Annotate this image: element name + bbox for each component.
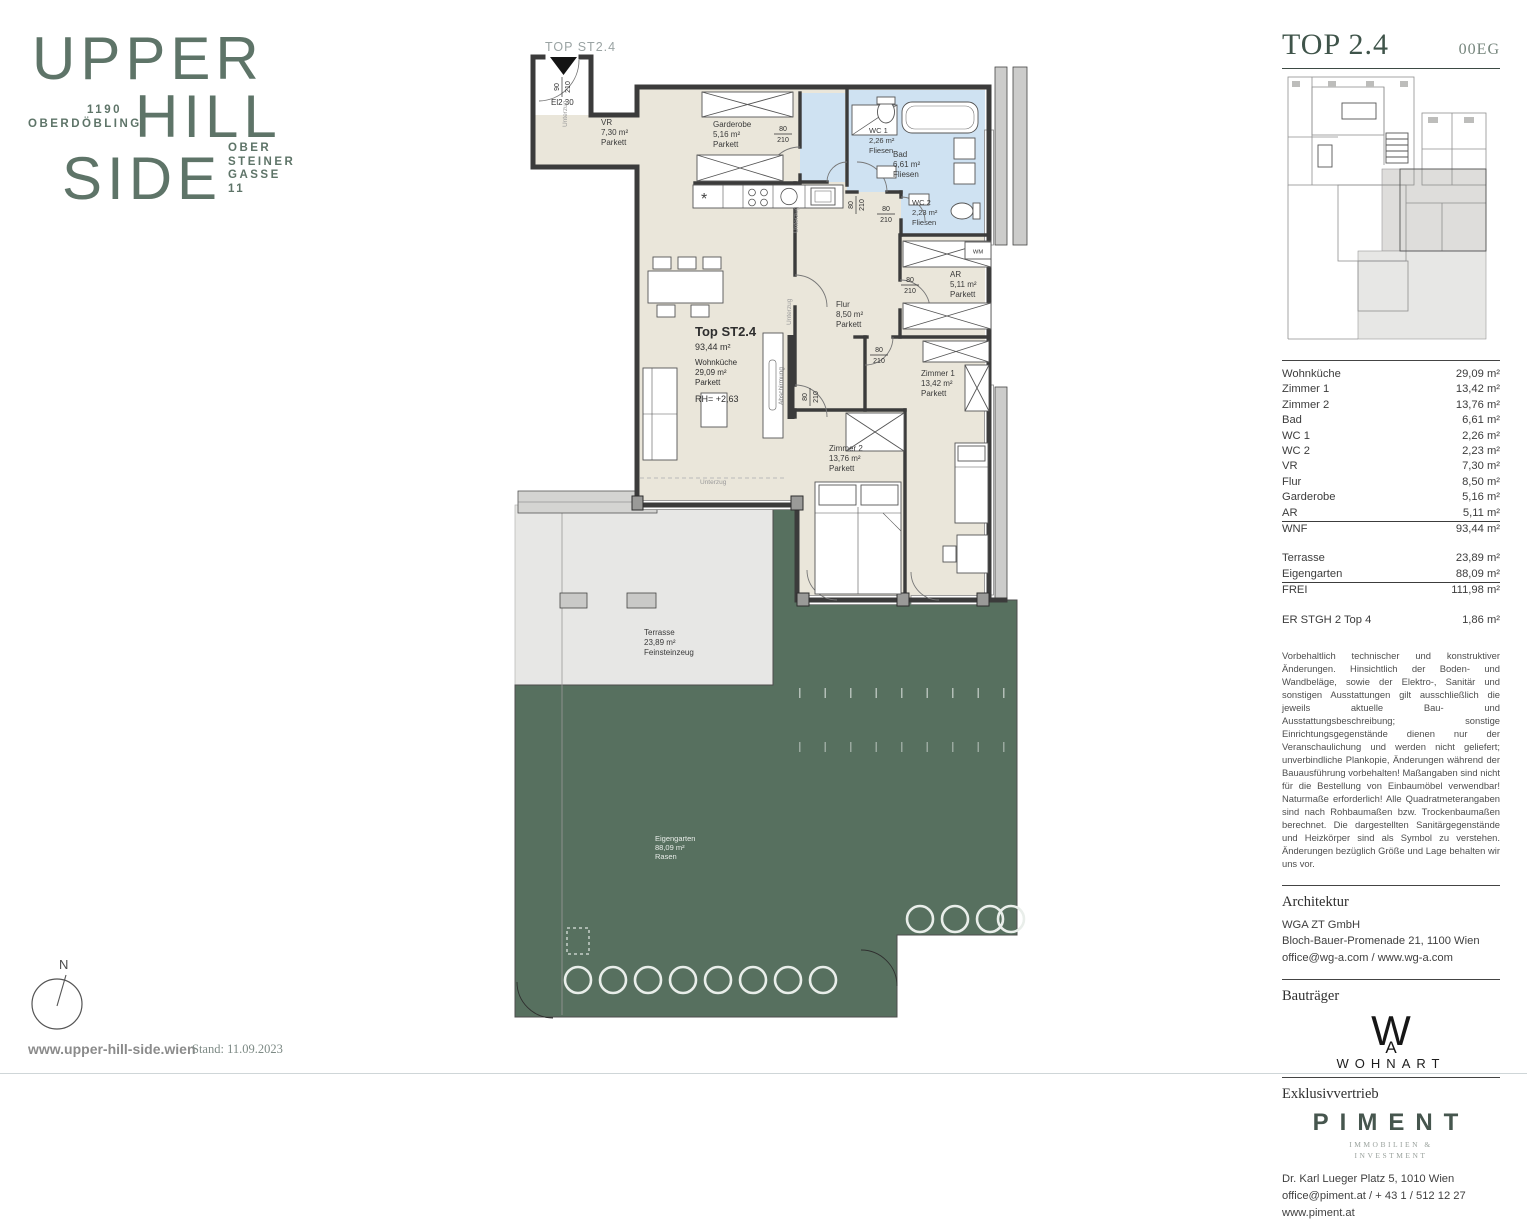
table-row: Bad6,61 m² — [1282, 413, 1500, 428]
piment-sub-1: IMMOBILIEN & — [1282, 1139, 1500, 1150]
svg-text:80: 80 — [802, 393, 809, 401]
compass-north-label: N — [59, 957, 68, 972]
architektur-line: WGA ZT GmbH — [1282, 917, 1500, 934]
vertrieb-heading: Exklusivvertrieb — [1282, 1086, 1500, 1103]
brand-district-zip: 1190 — [28, 104, 122, 118]
site-plan — [1282, 73, 1500, 355]
plan-top-label: TOP ST2.4 — [545, 40, 616, 54]
svg-text:Fliesen: Fliesen — [893, 170, 919, 179]
brand-street-3: GASSE — [228, 169, 295, 183]
svg-text:210: 210 — [873, 358, 885, 365]
table-row-frei: FREI111,98 m² — [1282, 582, 1500, 598]
svg-text:Terrasse: Terrasse — [644, 628, 675, 637]
floor-plan: * WM — [505, 35, 1035, 1035]
table-row-wnf: WNF93,44 m² — [1282, 521, 1500, 537]
svg-text:13,42 m²: 13,42 m² — [921, 379, 953, 388]
table-row: AR5,11 m² — [1282, 506, 1500, 521]
table-row: WC 22,23 m² — [1282, 444, 1500, 459]
svg-text:VR: VR — [601, 118, 612, 127]
svg-text:6,61 m²: 6,61 m² — [893, 160, 920, 169]
terrace-planter-1 — [560, 593, 587, 608]
brand-line-3: SIDE — [62, 150, 222, 208]
brand-street-1: OBER — [228, 142, 295, 156]
wohnart-monogram-icon: W A — [1346, 1011, 1436, 1055]
svg-text:WC 1: WC 1 — [869, 126, 888, 135]
svg-text:8,50 m²: 8,50 m² — [836, 310, 863, 319]
svg-text:210: 210 — [813, 391, 820, 403]
svg-text:2,23 m²: 2,23 m² — [912, 208, 938, 217]
table-row: Terrasse23,89 m² — [1282, 551, 1500, 566]
wohnart-logo: W A WOHNART — [1282, 1011, 1500, 1071]
svg-text:A: A — [1385, 1038, 1397, 1055]
rule-vertrieb — [1282, 1077, 1500, 1078]
disclaimer-text: Vorbehaltlich technischer und konstrukti… — [1282, 650, 1500, 870]
svg-text:5,11 m²: 5,11 m² — [950, 280, 977, 289]
svg-text:Zimmer 1: Zimmer 1 — [921, 369, 955, 378]
table-row: Garderobe5,16 m² — [1282, 490, 1500, 505]
freezer-icon: * — [701, 191, 707, 208]
table-top-rule — [1282, 360, 1500, 361]
svg-text:Bad: Bad — [893, 150, 907, 159]
svg-text:Flur: Flur — [836, 300, 850, 309]
bautraeger-heading: Bauträger — [1282, 988, 1500, 1005]
brand-street-4: 11 — [228, 183, 295, 197]
washing-machine-label: WM — [973, 250, 983, 256]
abschirmung-wall — [788, 335, 795, 419]
svg-text:Rasen: Rasen — [655, 852, 677, 861]
svg-text:RH= +2,63: RH= +2,63 — [695, 394, 739, 404]
svg-text:Unterzug: Unterzug — [793, 206, 800, 233]
svg-text:Fliesen: Fliesen — [869, 146, 893, 155]
floor-tag: 00EG — [1459, 41, 1500, 59]
piment-address: Dr. Karl Lueger Platz 5, 1010 Wien offic… — [1282, 1171, 1500, 1221]
piment-sub-2: INVESTMENT — [1282, 1150, 1500, 1161]
svg-text:13,76 m²: 13,76 m² — [829, 454, 861, 463]
svg-text:WC 2: WC 2 — [912, 198, 931, 207]
svg-text:Wohnküche: Wohnküche — [695, 358, 738, 367]
svg-text:93,44 m²: 93,44 m² — [695, 342, 731, 352]
svg-text:Parkett: Parkett — [695, 378, 721, 387]
brand-district: 1190 OBERDÖBLING — [28, 104, 122, 131]
page-edge-line — [0, 1073, 1527, 1074]
table-row: VR7,30 m² — [1282, 459, 1500, 474]
svg-text:29,09 m²: 29,09 m² — [695, 368, 727, 377]
svg-text:80: 80 — [779, 126, 787, 133]
svg-text:210: 210 — [565, 81, 572, 93]
table-row: Eigengarten88,09 m² — [1282, 567, 1500, 582]
architektur-line: Bloch-Bauer-Promenade 21, 1100 Wien — [1282, 933, 1500, 950]
wc1-floor — [800, 93, 845, 182]
table-row: Flur8,50 m² — [1282, 475, 1500, 490]
svg-text:90: 90 — [554, 83, 561, 91]
svg-text:80: 80 — [875, 347, 883, 354]
svg-text:80: 80 — [848, 201, 855, 209]
piment-logo: PIMENT IMMOBILIEN & INVESTMENT — [1282, 1109, 1500, 1162]
svg-text:Parkett: Parkett — [713, 140, 739, 149]
svg-text:Feinsteinzeug: Feinsteinzeug — [644, 648, 694, 657]
svg-text:Unterzug: Unterzug — [786, 298, 793, 325]
brand-street: OBER STEINER GASSE 11 — [228, 142, 295, 196]
piment-line: office@piment.at / + 43 1 / 512 12 27 — [1282, 1188, 1500, 1205]
piment-line: www.piment.at — [1282, 1205, 1500, 1222]
svg-text:AR: AR — [950, 270, 961, 279]
brand-logo: UPPER HILL SIDE 1190 OBERDÖBLING OBER ST… — [28, 30, 348, 245]
sidebar: TOP 2.4 00EG — [1282, 28, 1500, 1222]
svg-text:Unterzug: Unterzug — [700, 479, 727, 486]
svg-text:210: 210 — [904, 288, 916, 295]
svg-text:80: 80 — [882, 206, 890, 213]
abschirmung-label: Abschirmung — [778, 367, 785, 405]
svg-text:88,09 m²: 88,09 m² — [655, 843, 685, 852]
table-row: WC 12,26 m² — [1282, 429, 1500, 444]
rule-bautraeger — [1282, 979, 1500, 980]
architektur-line: office@wg-a.com / www.wg-a.com — [1282, 950, 1500, 967]
svg-text:210: 210 — [777, 137, 789, 144]
piment-subtitle: IMMOBILIEN & INVESTMENT — [1282, 1139, 1500, 1162]
table-row-extra: ER STGH 2 Top 41,86 m² — [1282, 613, 1500, 628]
table-row: Zimmer 213,76 m² — [1282, 398, 1500, 413]
piment-name: PIMENT — [1282, 1109, 1500, 1137]
svg-text:Parkett: Parkett — [950, 290, 976, 299]
brand-street-2: STEINER — [228, 156, 295, 170]
svg-text:2,26 m²: 2,26 m² — [869, 136, 895, 145]
svg-text:Eigengarten: Eigengarten — [655, 834, 695, 843]
svg-text:23,89 m²: 23,89 m² — [644, 638, 676, 647]
wohnart-name: WOHNART — [1282, 1056, 1500, 1071]
footer-website: www.upper-hill-side.wien — [28, 1041, 196, 1057]
svg-text:7,30 m²: 7,30 m² — [601, 128, 628, 137]
neighbour-walls — [995, 67, 1027, 598]
sidebar-title-row: TOP 2.4 00EG — [1282, 28, 1500, 62]
svg-text:Unterzug: Unterzug — [562, 100, 569, 127]
table-row: Wohnküche29,09 m² — [1282, 367, 1500, 382]
svg-text:Parkett: Parkett — [836, 320, 862, 329]
dim-entrance: 90 210 — [554, 77, 572, 97]
title-rule — [1282, 68, 1500, 69]
entrance-arrow-icon — [550, 57, 577, 75]
svg-text:210: 210 — [880, 217, 892, 224]
table-row: Zimmer 113,42 m² — [1282, 382, 1500, 397]
brand-line-1: UPPER — [32, 30, 264, 88]
page: { "brand": { "line1": "UPPER", "line2": … — [0, 0, 1527, 1080]
svg-text:Parkett: Parkett — [601, 138, 627, 147]
svg-text:Parkett: Parkett — [829, 464, 855, 473]
piment-line: Dr. Karl Lueger Platz 5, 1010 Wien — [1282, 1171, 1500, 1188]
architektur-heading: Architektur — [1282, 894, 1500, 911]
rule-architektur — [1282, 885, 1500, 886]
svg-text:Garderobe: Garderobe — [713, 120, 752, 129]
svg-text:Top ST2.4: Top ST2.4 — [695, 324, 757, 339]
svg-text:210: 210 — [859, 199, 866, 211]
footer-stand: Stand: 11.09.2023 — [192, 1042, 283, 1057]
unit-title: TOP 2.4 — [1282, 28, 1389, 62]
svg-text:5,16 m²: 5,16 m² — [713, 130, 740, 139]
bed-zimmer2 — [815, 482, 901, 594]
area-table: Wohnküche29,09 m² Zimmer 113,42 m² Zimme… — [1282, 367, 1500, 628]
svg-text:80: 80 — [906, 277, 914, 284]
bed-zimmer1 — [955, 443, 988, 523]
architektur-address: WGA ZT GmbH Bloch-Bauer-Promenade 21, 11… — [1282, 917, 1500, 967]
sink-icon — [811, 188, 835, 205]
terrace-planter-2 — [627, 593, 656, 608]
svg-text:Parkett: Parkett — [921, 389, 947, 398]
compass-icon: N — [25, 955, 103, 1037]
brand-district-name: OBERDÖBLING — [28, 118, 122, 132]
brand-line-2: HILL — [135, 88, 282, 146]
svg-text:Fliesen: Fliesen — [912, 218, 936, 227]
svg-text:Zimmer 2: Zimmer 2 — [829, 444, 863, 453]
kitchen-counter: * — [693, 185, 843, 208]
